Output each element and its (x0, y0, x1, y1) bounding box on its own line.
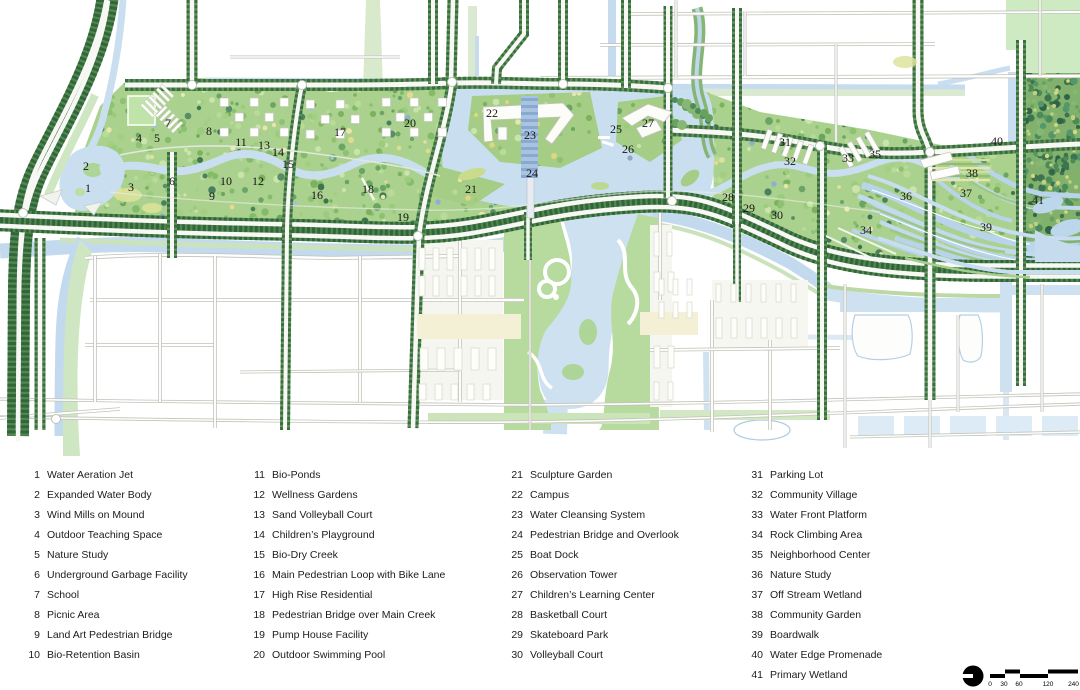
svg-text:19: 19 (397, 210, 409, 224)
svg-text:35: 35 (869, 147, 881, 161)
svg-text:18: 18 (362, 182, 374, 196)
svg-text:41: 41 (1032, 193, 1044, 207)
svg-text:27: 27 (642, 116, 654, 130)
svg-text:24: 24 (526, 166, 538, 180)
svg-text:21: 21 (465, 182, 477, 196)
svg-text:37: 37 (960, 186, 972, 200)
svg-text:34: 34 (860, 223, 872, 237)
svg-text:60: 60 (1015, 681, 1023, 688)
svg-text:1: 1 (85, 181, 91, 195)
svg-text:38: 38 (966, 166, 978, 180)
svg-text:11: 11 (235, 135, 247, 149)
svg-text:3: 3 (128, 180, 134, 194)
svg-text:15: 15 (282, 157, 294, 171)
svg-text:32: 32 (784, 154, 796, 168)
svg-text:36: 36 (900, 189, 912, 203)
svg-text:0: 0 (988, 681, 992, 688)
svg-text:120: 120 (1043, 681, 1054, 688)
svg-text:31: 31 (779, 135, 791, 149)
svg-text:7: 7 (165, 116, 171, 130)
svg-text:8: 8 (206, 124, 212, 138)
svg-text:22: 22 (486, 106, 498, 120)
svg-text:5: 5 (154, 131, 160, 145)
svg-text:25: 25 (610, 122, 622, 136)
svg-text:29: 29 (743, 201, 755, 215)
svg-text:13: 13 (258, 138, 270, 152)
svg-text:30: 30 (771, 208, 783, 222)
svg-text:23: 23 (524, 128, 536, 142)
svg-text:4: 4 (136, 131, 142, 145)
svg-text:9: 9 (209, 189, 215, 203)
svg-text:26: 26 (622, 142, 634, 156)
svg-text:16: 16 (311, 188, 323, 202)
svg-text:6: 6 (169, 174, 175, 188)
svg-text:39: 39 (980, 220, 992, 234)
svg-text:17: 17 (334, 125, 346, 139)
svg-text:12: 12 (252, 174, 264, 188)
svg-text:2: 2 (83, 159, 89, 173)
svg-text:28: 28 (722, 190, 734, 204)
svg-text:40: 40 (991, 134, 1003, 148)
svg-text:10: 10 (220, 174, 232, 188)
svg-text:240: 240 (1068, 681, 1079, 688)
svg-text:33: 33 (842, 151, 854, 165)
svg-text:30: 30 (1000, 681, 1008, 688)
svg-text:20: 20 (404, 116, 416, 130)
